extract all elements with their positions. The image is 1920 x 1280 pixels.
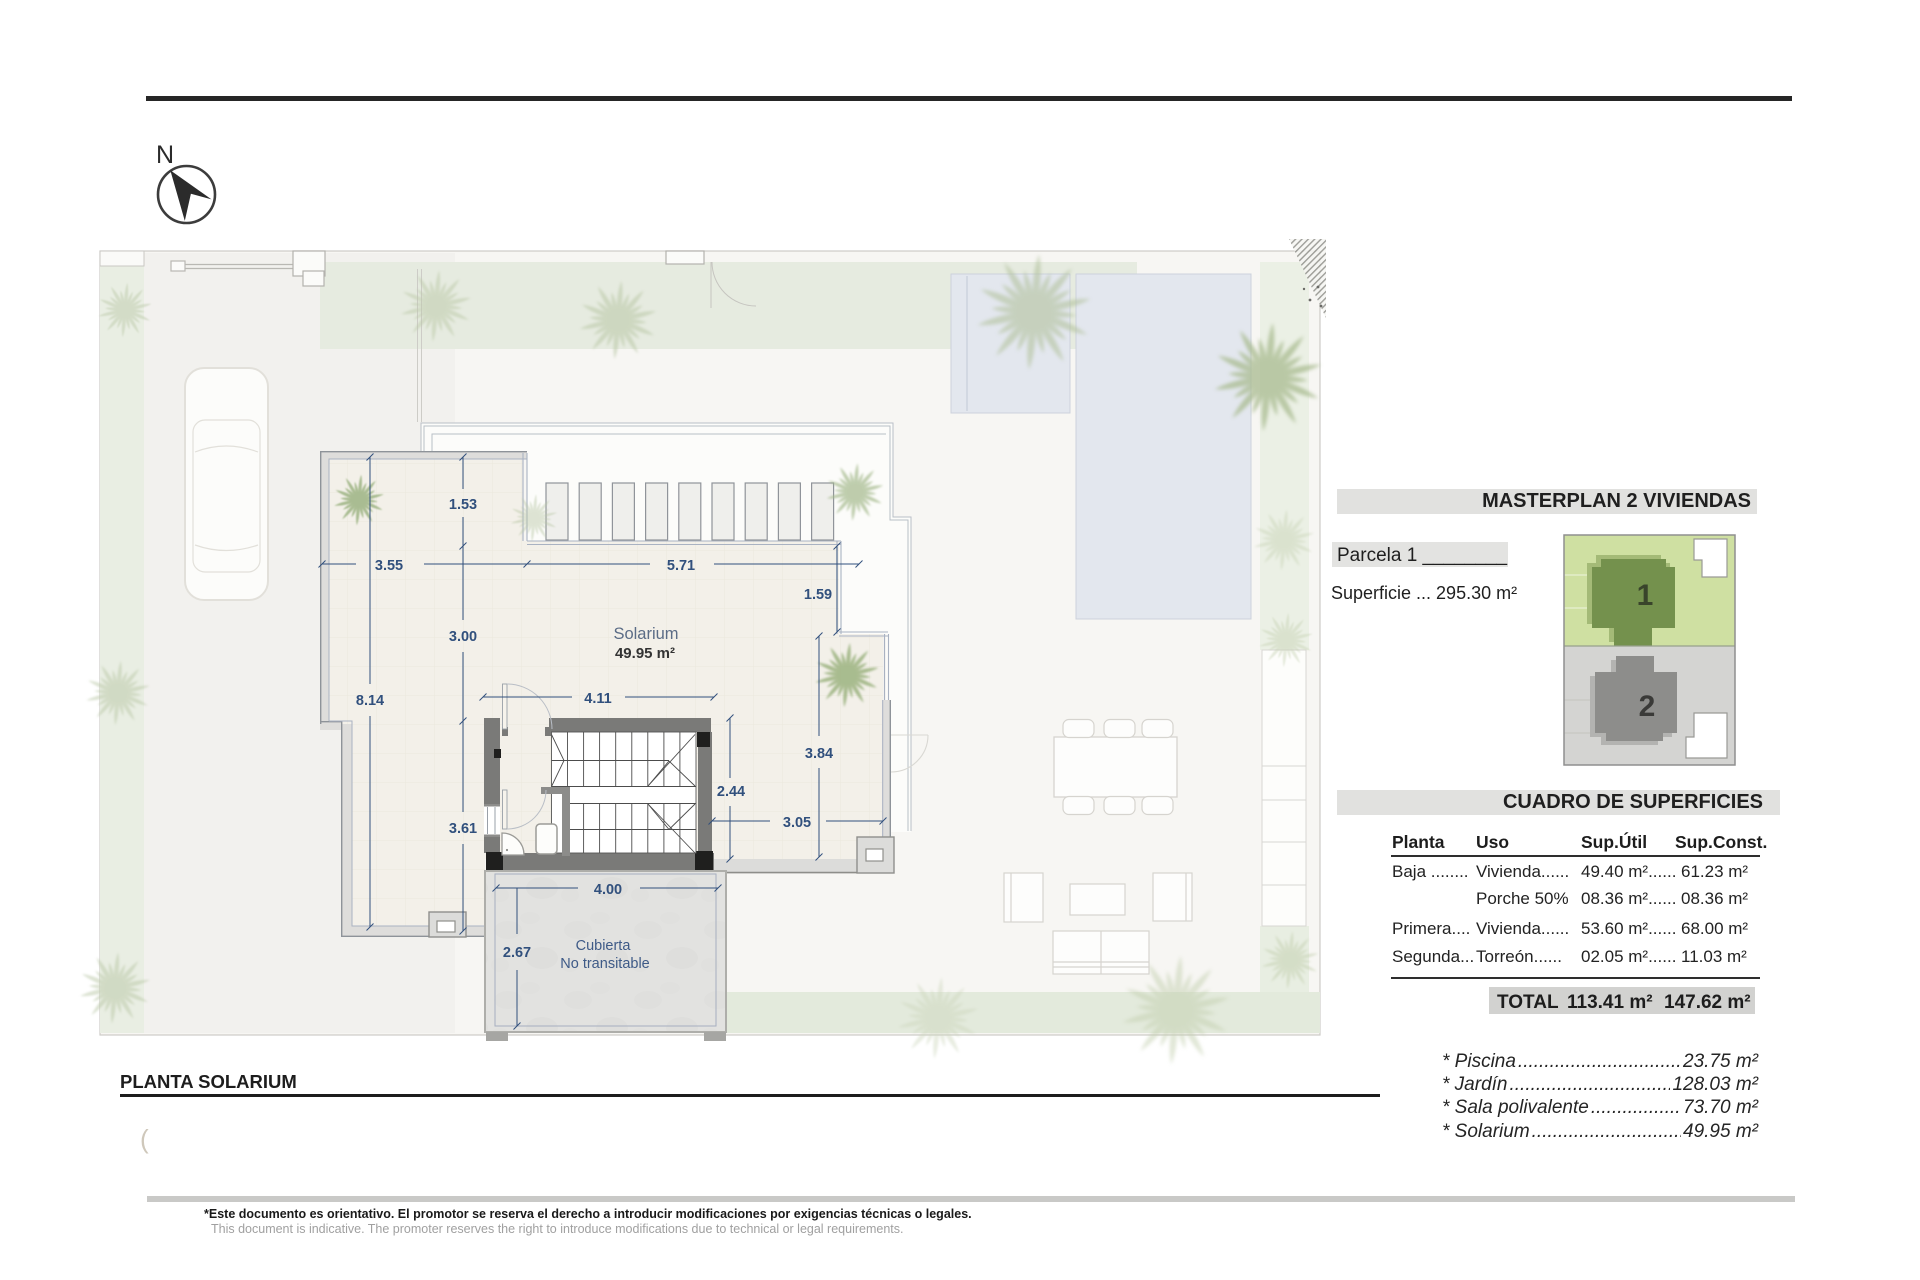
svg-text:2.44: 2.44 (717, 784, 745, 800)
svg-text:N: N (156, 141, 174, 169)
svg-text:No transitable: No transitable (560, 956, 649, 972)
svg-text:3.05: 3.05 (783, 815, 811, 831)
svg-text:1.53: 1.53 (449, 497, 477, 513)
svg-text:1: 1 (1637, 579, 1654, 612)
svg-text:2: 2 (1639, 690, 1656, 723)
svg-text:3.61: 3.61 (449, 821, 477, 837)
svg-text:49.95 m²: 49.95 m² (615, 645, 675, 662)
svg-text:3.00: 3.00 (449, 629, 477, 645)
svg-text:3.55: 3.55 (375, 558, 403, 574)
svg-text:4.00: 4.00 (594, 882, 622, 898)
svg-text:8.14: 8.14 (356, 693, 384, 709)
svg-text:Cubierta: Cubierta (576, 938, 632, 954)
svg-text:2.67: 2.67 (503, 945, 531, 961)
svg-text:5.71: 5.71 (667, 558, 695, 574)
svg-text:4.11: 4.11 (584, 691, 611, 707)
svg-text:1.59: 1.59 (804, 587, 832, 603)
svg-text:Solarium: Solarium (613, 625, 678, 643)
svg-text:3.84: 3.84 (805, 746, 833, 762)
